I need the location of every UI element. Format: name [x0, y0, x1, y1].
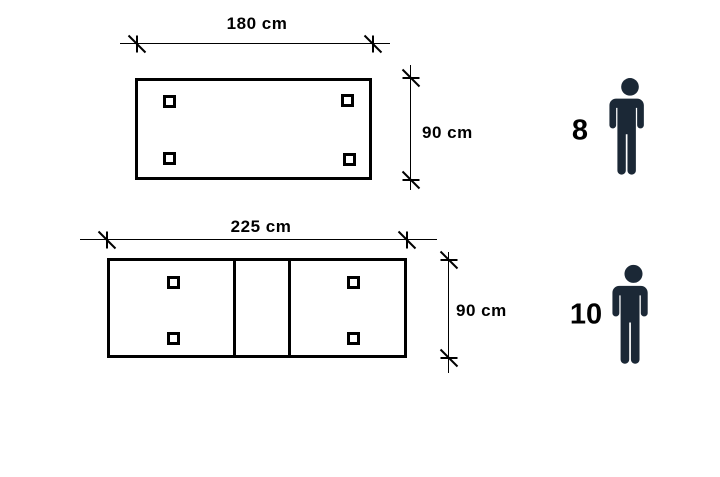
dim-line-width-table1: [120, 43, 390, 44]
dim-line-depth-table1: [410, 65, 411, 190]
table2-leaf-divider-right: [288, 261, 291, 355]
capacity-table2: 10: [570, 299, 602, 332]
table2-leg-bottom-right: [347, 332, 360, 345]
table1-leg-top-right: [341, 94, 354, 107]
person-body: [609, 99, 643, 175]
table2-leg-bottom-left: [167, 332, 180, 345]
width-label-table2: 225 cm: [231, 217, 292, 237]
capacity-table1: 8: [572, 115, 588, 148]
table1-leg-bottom-left: [163, 152, 176, 165]
depth-label-table1: 90 cm: [422, 123, 473, 143]
table1-leg-bottom-right: [343, 153, 356, 166]
table1-leg-top-left: [163, 95, 176, 108]
person-icon: [609, 76, 651, 180]
width-label-table1: 180 cm: [227, 14, 288, 34]
table-dimensions-diagram: 180 cm 90 cm 8 225 cm: [0, 0, 720, 477]
person-head: [624, 265, 642, 283]
dim-line-width-table2: [80, 239, 437, 240]
table2-leaf-divider-left: [233, 261, 236, 355]
person-icon: [612, 263, 655, 369]
table2-outline: [107, 258, 407, 358]
table2-leg-top-left: [167, 276, 180, 289]
person-body: [612, 286, 647, 364]
table2-leg-top-right: [347, 276, 360, 289]
depth-label-table2: 90 cm: [456, 301, 507, 321]
person-head: [621, 78, 639, 96]
person-icon-svg: [612, 263, 655, 369]
person-icon-svg: [609, 76, 651, 180]
